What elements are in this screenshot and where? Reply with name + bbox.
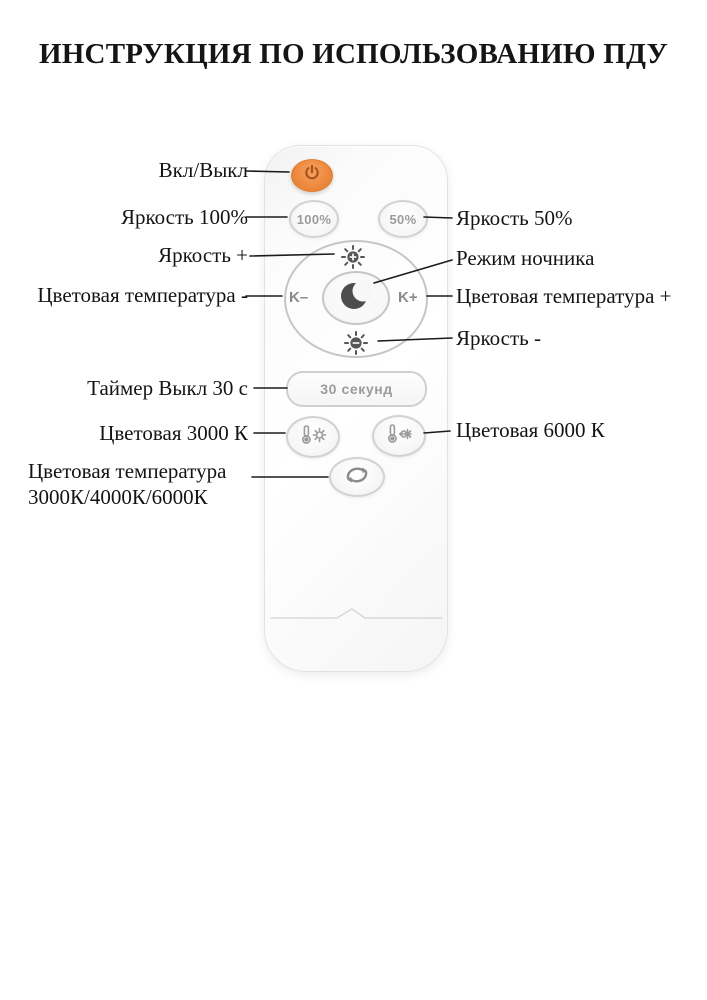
battery-cover-notch — [267, 606, 445, 624]
thermometer-sun-icon — [297, 424, 329, 451]
label-brightness-plus: Яркость + — [158, 243, 248, 267]
brightness-100-button-label: 100% — [297, 212, 331, 227]
color-temp-plus-button[interactable]: K+ — [398, 289, 418, 306]
label-color-3000: Цветовая 3000 К — [99, 421, 248, 445]
label-night-mode: Режим ночника — [456, 246, 594, 270]
label-color-cycle: Цветовая температура 3000К/4000К/6000К — [28, 458, 226, 510]
page-title: ИНСТРУКЦИЯ ПО ИСПОЛЬЗОВАНИЮ ПДУ — [0, 38, 707, 71]
instruction-page: ИНСТРУКЦИЯ ПО ИСПОЛЬЗОВАНИЮ ПДУ 100% 50% — [0, 0, 707, 1000]
label-color-cycle-line1: Цветовая температура — [28, 458, 226, 484]
label-color-temp-minus: Цветовая температура - — [37, 283, 248, 307]
color-cycle-button[interactable] — [329, 457, 385, 497]
label-color-6000: Цветовая 6000 К — [456, 418, 605, 442]
sun-plus-icon[interactable] — [340, 244, 366, 270]
power-button[interactable] — [291, 159, 333, 192]
timer-30s-button[interactable]: 30 секунд — [286, 371, 427, 407]
power-icon — [303, 164, 321, 187]
thermometer-snowflake-icon — [383, 423, 415, 450]
color-temp-minus-button[interactable]: K– — [289, 289, 308, 306]
timer-30s-button-label: 30 секунд — [320, 381, 393, 397]
color-6000k-button[interactable] — [372, 415, 426, 457]
label-timer-off: Таймер Выкл 30 с — [87, 376, 248, 400]
brightness-100-button[interactable]: 100% — [289, 200, 339, 238]
cycle-arrows-icon — [340, 462, 374, 493]
remote-control: 100% 50% — [264, 145, 448, 672]
moon-icon — [338, 279, 374, 318]
sun-minus-icon[interactable] — [343, 330, 369, 356]
label-brightness-minus: Яркость - — [456, 326, 541, 350]
label-color-cycle-line2: 3000К/4000К/6000К — [28, 484, 226, 510]
label-power: Вкл/Выкл — [159, 158, 248, 182]
brightness-50-button[interactable]: 50% — [378, 200, 428, 238]
brightness-50-button-label: 50% — [390, 212, 417, 227]
label-brightness-100: Яркость 100% — [121, 205, 248, 229]
night-mode-button[interactable] — [322, 271, 390, 325]
label-color-temp-plus: Цветовая температура + — [456, 284, 672, 308]
color-3000k-button[interactable] — [286, 416, 340, 458]
label-brightness-50: Яркость 50% — [456, 206, 572, 230]
